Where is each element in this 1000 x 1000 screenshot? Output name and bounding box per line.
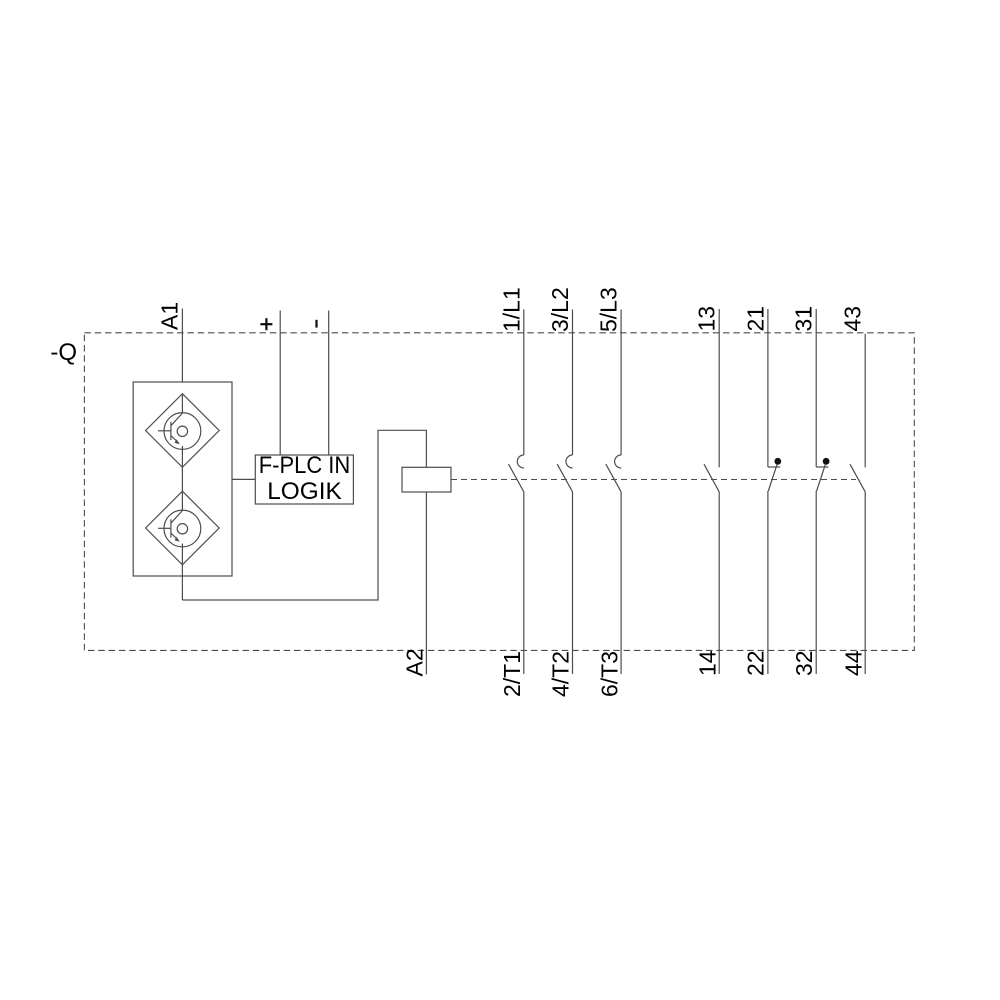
- svg-text:LOGIK: LOGIK: [267, 478, 342, 505]
- svg-text:31: 31: [791, 306, 817, 332]
- svg-text:A1: A1: [156, 302, 182, 330]
- svg-text:5/L3: 5/L3: [596, 287, 622, 332]
- svg-text:F-PLC IN: F-PLC IN: [259, 452, 351, 479]
- svg-text:-Q: -Q: [50, 339, 77, 366]
- svg-text:1/L1: 1/L1: [498, 287, 524, 332]
- svg-text:6/T3: 6/T3: [596, 651, 622, 697]
- svg-text:4/T2: 4/T2: [548, 651, 574, 697]
- svg-text:2/T1: 2/T1: [499, 651, 525, 697]
- svg-text:14: 14: [694, 650, 720, 676]
- svg-text:A2: A2: [401, 648, 427, 676]
- svg-text:32: 32: [791, 650, 817, 676]
- svg-text:3/L2: 3/L2: [547, 287, 573, 332]
- svg-text:21: 21: [742, 306, 768, 332]
- svg-text:22: 22: [743, 650, 769, 676]
- svg-text:13: 13: [694, 306, 720, 332]
- svg-text:44: 44: [840, 650, 866, 676]
- svg-text:43: 43: [840, 306, 866, 332]
